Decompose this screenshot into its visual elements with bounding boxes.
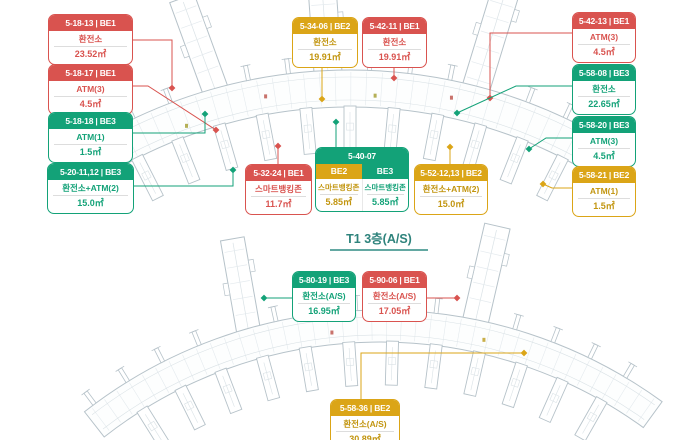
- map-label-5-52-12,13: 5-52-12,13 | BE2환전소+ATM(2)15.0㎡: [414, 164, 488, 215]
- facility-name: ATM(1): [573, 183, 635, 199]
- facility-area: 5.85㎡: [320, 194, 358, 211]
- label-code: 5-58-08 | BE3: [573, 65, 635, 81]
- zone-be2-cell: BE2: [316, 164, 362, 180]
- map-label-5-40-07: 5-40-07 BE2 BE3 스마트뱅킹존 5.85㎡ 스마트뱅킹존 5.85…: [315, 147, 409, 212]
- facility-area: 15.0㎡: [420, 196, 482, 213]
- facility-area: 1.5㎡: [578, 198, 630, 215]
- label-code: 5-42-11 | BE1: [363, 18, 426, 34]
- label-code: 5-40-07: [316, 148, 408, 164]
- map-label-5-34-06: 5-34-06 | BE2환전소19.91㎡: [292, 17, 358, 68]
- facility-name: 환전소: [49, 31, 132, 47]
- facility-area: 4.5㎡: [54, 96, 127, 113]
- label-code: 5-42-13 | BE1: [573, 13, 635, 29]
- map-label-5-42-11: 5-42-11 | BE1환전소19.91㎡: [362, 17, 427, 68]
- map-label-5-80-19: 5-80-19 | BE3환전소(A/S)16.95㎡: [292, 271, 356, 322]
- facility-name: 환전소: [363, 34, 426, 50]
- label-code: 5-20-11,12 | BE3: [48, 164, 133, 180]
- label-code: 5-52-12,13 | BE2: [415, 165, 487, 181]
- label-code: 5-58-21 | BE2: [573, 167, 635, 183]
- callout-labels-layer: 5-40-07 BE2 BE3 스마트뱅킹존 5.85㎡ 스마트뱅킹존 5.85…: [0, 0, 700, 440]
- facility-name: ATM(3): [49, 81, 132, 97]
- facility-area: 17.05㎡: [368, 303, 421, 320]
- facility-name: 스마트뱅킹존: [246, 181, 311, 197]
- label-code: 5-90-06 | BE1: [363, 272, 426, 288]
- facility-area: 23.52㎡: [54, 46, 127, 63]
- facility-name: 스마트뱅킹존: [316, 179, 362, 194]
- facility-name: 환전소(A/S): [363, 288, 426, 304]
- label-code: 5-80-19 | BE3: [293, 272, 355, 288]
- facility-area: 4.5㎡: [578, 148, 630, 165]
- facility-area: 22.65㎡: [578, 96, 630, 113]
- facility-area: 4.5㎡: [578, 44, 630, 61]
- label-zone-row: BE2 BE3: [316, 164, 408, 180]
- label-body: 스마트뱅킹존 5.85㎡ 스마트뱅킹존 5.85㎡: [316, 179, 408, 211]
- label-code: 5-32-24 | BE1: [246, 165, 311, 181]
- facility-name: 환전소(A/S): [331, 416, 399, 432]
- map-label-5-42-13: 5-42-13 | BE1ATM(3)4.5㎡: [572, 12, 636, 63]
- facility-name: 환전소: [573, 81, 635, 97]
- label-code: 5-18-13 | BE1: [49, 15, 132, 31]
- label-code: 5-18-17 | BE1: [49, 65, 132, 81]
- map-label-5-32-24: 5-32-24 | BE1스마트뱅킹존11.7㎡: [245, 164, 312, 215]
- facility-area: 16.95㎡: [298, 303, 350, 320]
- zone-be3-cell: BE3: [362, 164, 408, 180]
- map-label-5-18-18: 5-18-18 | BE3ATM(1)1.5㎡: [48, 112, 133, 163]
- be2-column: 스마트뱅킹존 5.85㎡: [316, 179, 362, 211]
- facility-area: 1.5㎡: [54, 144, 127, 161]
- facility-name: 환전소(A/S): [293, 288, 355, 304]
- facility-area: 19.91㎡: [298, 49, 352, 66]
- label-code: 5-58-20 | BE3: [573, 117, 635, 133]
- map-label-5-58-08: 5-58-08 | BE3환전소22.65㎡: [572, 64, 636, 115]
- label-code: 5-18-18 | BE3: [49, 113, 132, 129]
- facility-name: 환전소+ATM(2): [415, 181, 487, 197]
- map-label-5-58-21: 5-58-21 | BE2ATM(1)1.5㎡: [572, 166, 636, 217]
- bottom-map-title: T1 3층(A/S): [330, 228, 428, 251]
- facility-area: 30.89㎡: [336, 431, 394, 440]
- facility-name: 환전소+ATM(2): [48, 180, 133, 196]
- label-code: 5-58-36 | BE2: [331, 400, 399, 416]
- facility-name: 스마트뱅킹존: [363, 179, 409, 194]
- map-label-5-18-17: 5-18-17 | BE1ATM(3)4.5㎡: [48, 64, 133, 115]
- map-label-5-20-11,12: 5-20-11,12 | BE3환전소+ATM(2)15.0㎡: [47, 163, 134, 214]
- facility-area: 5.85㎡: [367, 194, 405, 211]
- map-label-5-90-06: 5-90-06 | BE1환전소(A/S)17.05㎡: [362, 271, 427, 322]
- terminal-map-figure: 5-40-07 BE2 BE3 스마트뱅킹존 5.85㎡ 스마트뱅킹존 5.85…: [0, 0, 700, 440]
- facility-name: 환전소: [293, 34, 357, 50]
- map-label-5-58-20: 5-58-20 | BE3ATM(3)4.5㎡: [572, 116, 636, 167]
- facility-name: ATM(1): [49, 129, 132, 145]
- facility-area: 19.91㎡: [368, 49, 421, 66]
- facility-area: 11.7㎡: [251, 196, 306, 213]
- map-label-5-18-13: 5-18-13 | BE1환전소23.52㎡: [48, 14, 133, 65]
- map-label-5-58-36: 5-58-36 | BE2환전소(A/S)30.89㎡: [330, 399, 400, 440]
- facility-name: ATM(3): [573, 133, 635, 149]
- facility-name: ATM(3): [573, 29, 635, 45]
- label-code: 5-34-06 | BE2: [293, 18, 357, 34]
- be3-column: 스마트뱅킹존 5.85㎡: [362, 179, 409, 211]
- facility-area: 15.0㎡: [53, 195, 128, 212]
